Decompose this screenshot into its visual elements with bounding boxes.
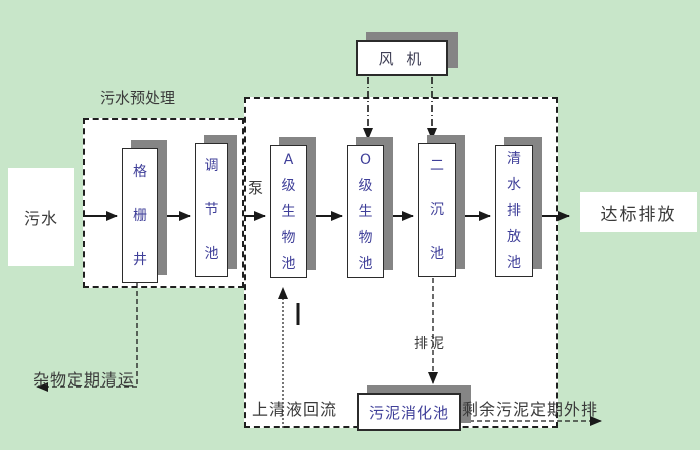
excess-sludge-discharge-label: 剩余污泥定期外排 [462, 396, 598, 420]
secondary-sedimentation-tank: 二沉池 [418, 143, 456, 277]
influent-label: 污水 [24, 205, 58, 229]
secondary-sedimentation-tank-label: 二沉池 [429, 144, 446, 276]
grid-well-tank: 格栅井 [122, 148, 158, 283]
effluent-box: 达标排放 [580, 192, 697, 232]
debris-removal-label: 杂物定期清运 [33, 366, 135, 390]
o-bio-tank: O级生物池 [347, 145, 384, 278]
pretreatment-section-label: 污水预处理 [100, 87, 175, 108]
a-bio-tank: A级生物池 [270, 145, 307, 278]
blower-box: 风 机 [356, 40, 448, 76]
influent-box: 污水 [8, 168, 74, 266]
supernatant-return-label: 上清液回流 [252, 396, 337, 420]
sludge-digestion-tank-label: 污泥消化池 [369, 402, 449, 423]
a-bio-tank-label: A级生物池 [280, 147, 297, 277]
pump-label: 泵 [248, 177, 263, 198]
sludge-digestion-tank-box: 污泥消化池 [357, 393, 461, 431]
clear-water-discharge-tank: 清水排放池 [495, 145, 533, 277]
regulating-tank-label: 调节池 [203, 144, 220, 276]
process-flow-diagram: 污水 格栅井 调节池 A级生物池 O级生物池 二沉池 清水排放池 风 机 污泥消… [0, 0, 700, 450]
sludge-discharge-label: 排泥 [414, 333, 446, 353]
regulating-tank: 调节池 [195, 143, 228, 277]
effluent-label: 达标排放 [601, 200, 677, 225]
blower-label: 风 机 [379, 48, 426, 69]
clear-water-discharge-tank-label: 清水排放池 [506, 146, 523, 276]
o-bio-tank-label: O级生物池 [357, 147, 374, 277]
grid-well-label: 格栅井 [132, 150, 149, 282]
